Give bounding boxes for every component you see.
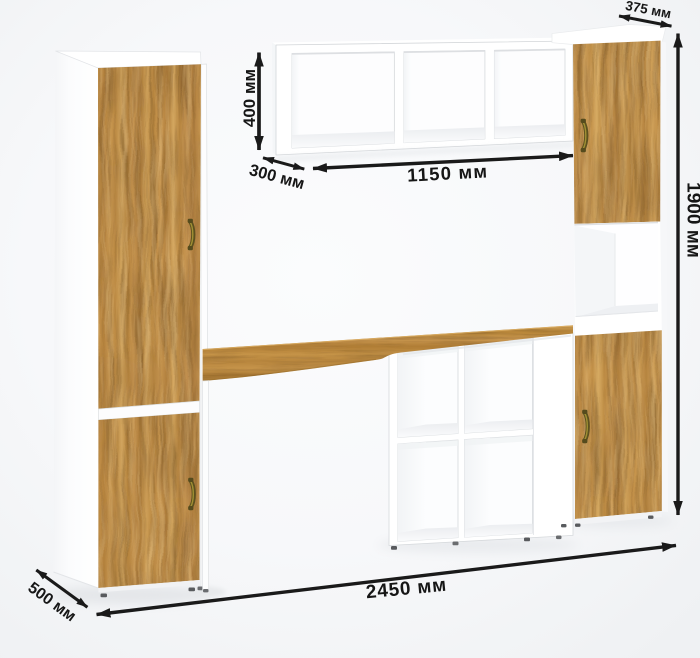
svg-text:1150 мм: 1150 мм (407, 160, 489, 185)
svg-text:1900 мм: 1900 мм (683, 182, 700, 258)
svg-text:400 мм: 400 мм (240, 69, 259, 127)
